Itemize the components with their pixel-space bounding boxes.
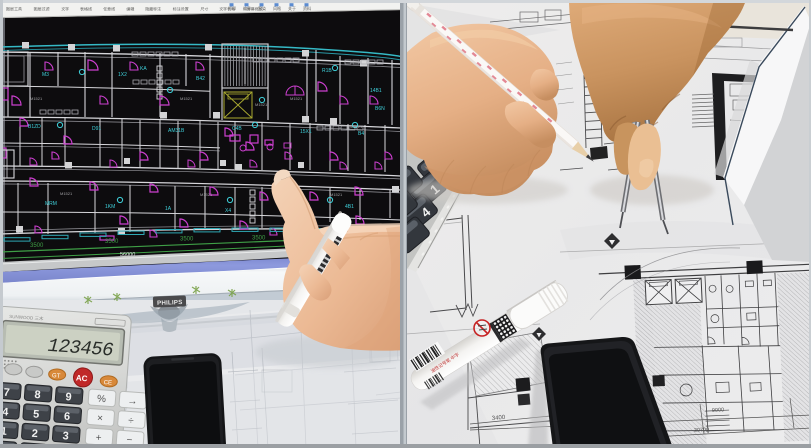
svg-text:任意线: 任意线 [103, 5, 115, 11]
svg-text:M1521: M1521 [330, 192, 343, 197]
svg-text:%: % [97, 394, 107, 406]
svg-text:标注设置: 标注设置 [173, 5, 189, 11]
svg-text:打印: 打印 [228, 5, 236, 11]
svg-text:6: 6 [64, 411, 71, 423]
svg-text:5: 5 [33, 408, 40, 420]
svg-text:GT: GT [52, 373, 61, 380]
svg-text:M1521: M1521 [200, 192, 213, 197]
svg-text:编号: 编号 [243, 5, 251, 11]
svg-text:15X1: 15X1 [300, 129, 312, 135]
svg-text:3500: 3500 [180, 237, 194, 243]
svg-text:关于: 关于 [288, 5, 296, 11]
svg-text:2: 2 [31, 428, 38, 440]
svg-text:M1521: M1521 [255, 102, 268, 107]
svg-text:M1521: M1521 [290, 96, 303, 101]
svg-text:1KM: 1KM [105, 204, 115, 210]
svg-text:KA: KA [140, 66, 147, 72]
svg-text:B4: B4 [358, 131, 364, 137]
svg-text:3500: 3500 [30, 243, 44, 249]
svg-text:R1B: R1B [322, 68, 332, 74]
svg-text:AM31B: AM31B [168, 128, 185, 134]
svg-text:X4: X4 [225, 208, 231, 214]
svg-text:表格线: 表格线 [80, 5, 92, 11]
svg-text:M1521: M1521 [180, 96, 193, 101]
svg-text:M1521: M1521 [350, 124, 363, 129]
svg-text:30700: 30700 [694, 427, 710, 434]
svg-text:3: 3 [62, 430, 69, 442]
svg-text:→: → [127, 396, 138, 408]
svg-text:MRM: MRM [45, 201, 57, 207]
svg-text:PHILIPS: PHILIPS [157, 299, 183, 307]
svg-text:图层工具: 图层工具 [6, 5, 22, 11]
svg-text:C4B: C4B [232, 126, 242, 132]
svg-text:B6N: B6N [375, 106, 385, 112]
svg-text:尺寸: 尺寸 [200, 5, 208, 11]
svg-text:AC: AC [76, 373, 88, 383]
svg-text:图层过滤: 图层过滤 [34, 5, 50, 11]
svg-text:3400: 3400 [492, 415, 506, 422]
svg-text:风格: 风格 [273, 5, 281, 11]
svg-text:14B1: 14B1 [370, 88, 382, 94]
svg-text:M1521: M1521 [30, 96, 43, 101]
svg-text:7: 7 [3, 387, 10, 399]
svg-text:1A: 1A [165, 206, 172, 212]
svg-text:8: 8 [34, 389, 41, 401]
svg-text:×: × [97, 413, 104, 424]
svg-text:M3: M3 [42, 72, 49, 78]
svg-text:隐藏标注: 隐藏标注 [145, 5, 161, 11]
svg-text:9: 9 [65, 391, 72, 403]
svg-text:宣染: 宣染 [258, 5, 266, 11]
svg-text:M1521: M1521 [60, 191, 73, 196]
svg-text:资料: 资料 [303, 5, 311, 11]
svg-text:1X2: 1X2 [118, 72, 127, 78]
svg-text:CE: CE [103, 380, 112, 387]
svg-text:B1ZD: B1ZD [28, 124, 41, 130]
svg-text:3500: 3500 [252, 235, 266, 241]
svg-text:3500: 3500 [105, 239, 119, 245]
svg-text:B42: B42 [196, 76, 205, 82]
svg-text:文字: 文字 [61, 5, 69, 11]
svg-text:编辑: 编辑 [126, 5, 134, 11]
svg-text:9000: 9000 [712, 407, 725, 414]
svg-text:D91: D91 [92, 126, 101, 132]
svg-text:4B1: 4B1 [345, 204, 354, 210]
svg-text:+: + [95, 433, 102, 444]
